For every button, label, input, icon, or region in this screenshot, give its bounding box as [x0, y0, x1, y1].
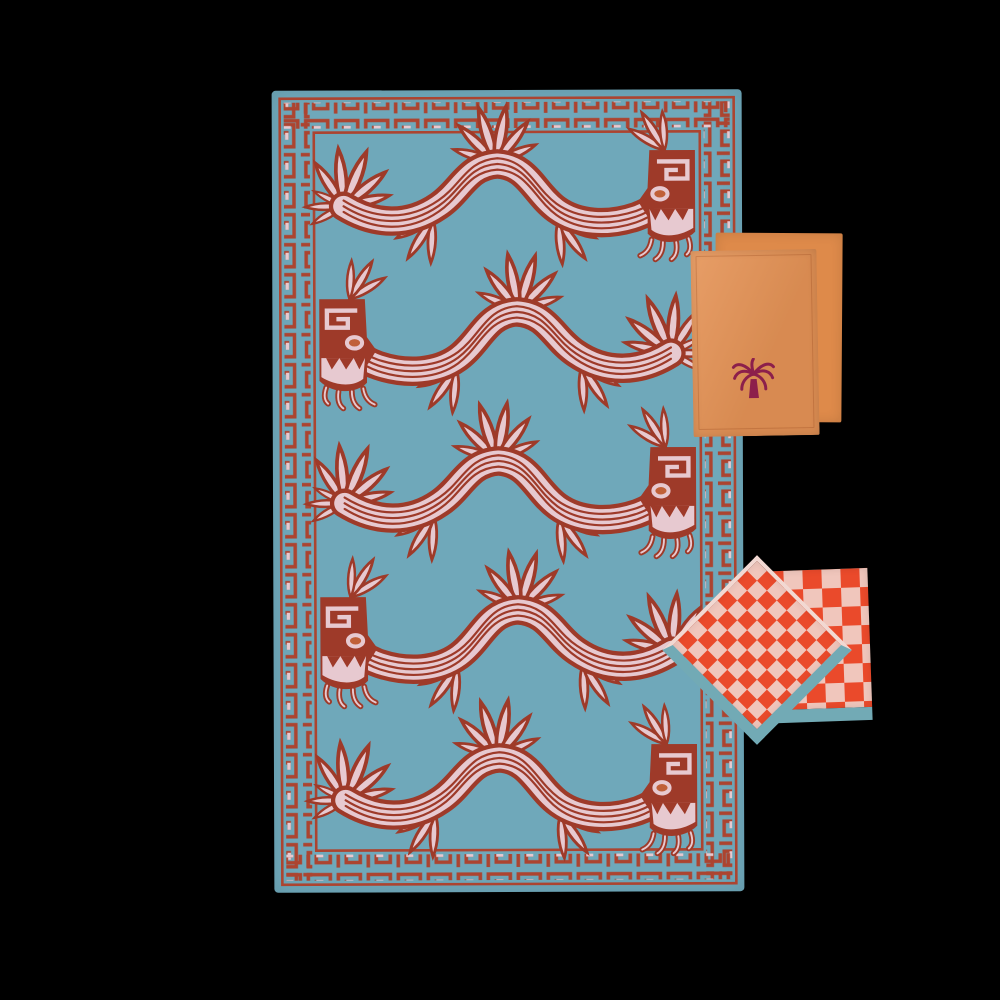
serpent-motif-row-2 [319, 253, 710, 413]
product-photo-scene [0, 0, 1000, 1000]
serpent-motif-row-3 [306, 402, 697, 562]
serpent-motif-row-5 [307, 699, 698, 859]
orange-napkin-front [690, 249, 819, 437]
palm-tree-embroidery [731, 358, 776, 401]
tablecloth-print [272, 89, 745, 893]
serpent-motif-row-4 [320, 551, 711, 711]
tablecloth [272, 89, 745, 893]
serpent-motif-row-1 [305, 105, 696, 265]
